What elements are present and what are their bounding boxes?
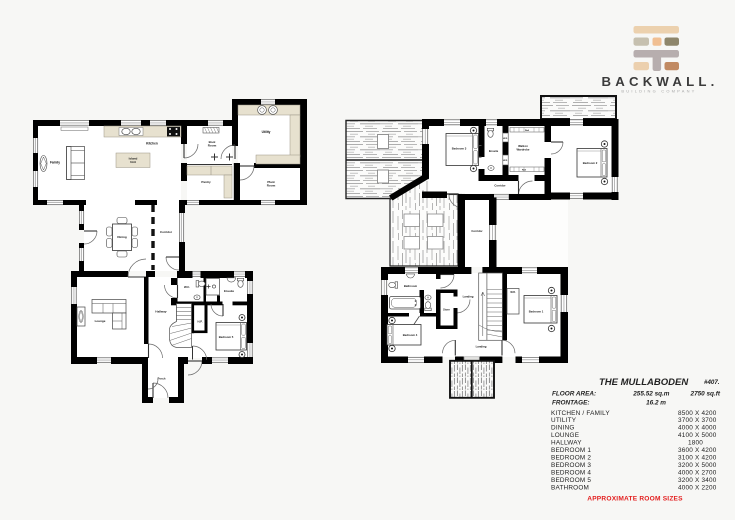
svg-text:Corridor: Corridor (160, 230, 173, 234)
svg-text:HALLWAY: HALLWAY (551, 440, 582, 447)
svg-text:BEDROOM 5: BEDROOM 5 (551, 477, 591, 484)
svg-text:Dining: Dining (117, 235, 126, 239)
svg-text:Bedroom 3: Bedroom 3 (452, 147, 467, 151)
svg-text:Bedroom 4: Bedroom 4 (403, 333, 418, 337)
svg-text:W.R.: W.R. (510, 291, 516, 294)
svg-text:Ensuite: Ensuite (489, 149, 499, 153)
svg-text:Bedroom 2: Bedroom 2 (583, 161, 598, 165)
svg-text:1800: 1800 (688, 440, 703, 447)
svg-text:4000 X 4000: 4000 X 4000 (678, 425, 717, 432)
svg-text:Store: Store (443, 308, 450, 312)
svg-text:Lounge: Lounge (95, 319, 106, 323)
svg-text:4000 X 2200: 4000 X 2200 (678, 484, 717, 491)
svg-text:3200 X 5000: 3200 X 5000 (678, 462, 717, 469)
svg-text:BEDROOM 1: BEDROOM 1 (551, 447, 591, 454)
svg-text:255.52 sq.m: 255.52 sq.m (632, 390, 670, 397)
svg-text:Rail: Rail (525, 130, 529, 132)
svg-text:Family: Family (50, 161, 60, 165)
svg-text:Corridor: Corridor (494, 184, 506, 188)
svg-text:BUILDING COMPANY: BUILDING COMPANY (621, 89, 696, 94)
svg-text:2750 sq.ft: 2750 sq.ft (690, 390, 721, 397)
svg-text:THE MULLABODEN: THE MULLABODEN (599, 377, 689, 388)
svg-text:BATHROOM: BATHROOM (551, 484, 589, 491)
svg-text:APPROXIMATE ROOM SIZES: APPROXIMATE ROOM SIZES (587, 496, 683, 503)
svg-text:Walk-inWardrobe: Walk-inWardrobe (517, 144, 530, 151)
svg-text:W.C.: W.C. (184, 285, 190, 289)
svg-text:Bathroom: Bathroom (404, 284, 418, 288)
svg-text:Bedroom 1: Bedroom 1 (529, 310, 544, 314)
svg-text:Bedroom 5: Bedroom 5 (219, 335, 234, 339)
svg-text:3700 X 3700: 3700 X 3700 (678, 417, 717, 424)
svg-text:BEDROOM 4: BEDROOM 4 (551, 469, 591, 476)
svg-text:3100 X 4200: 3100 X 4200 (678, 455, 717, 462)
svg-text:LOUNGE: LOUNGE (551, 432, 579, 439)
svg-text:FRONTAGE:: FRONTAGE: (552, 399, 590, 406)
svg-text:BEDROOM 2: BEDROOM 2 (551, 455, 591, 462)
svg-text:4100 X 5000: 4100 X 5000 (678, 432, 717, 439)
svg-text:Kitchen: Kitchen (146, 142, 158, 146)
svg-text:Corridor: Corridor (471, 229, 483, 233)
svg-text:16.2 m: 16.2 m (646, 399, 666, 406)
svg-text:Porch: Porch (158, 377, 166, 381)
svg-text:Rail: Rail (522, 170, 526, 172)
svg-text:BEDROOM 3: BEDROOM 3 (551, 462, 591, 469)
svg-text:Landing: Landing (463, 295, 474, 299)
svg-text:8500 X 4200: 8500 X 4200 (678, 410, 717, 417)
svg-text:Ensuite: Ensuite (224, 289, 235, 293)
svg-text:FLOOR AREA:: FLOOR AREA: (552, 390, 596, 397)
svg-text:Hallway: Hallway (155, 310, 167, 314)
svg-text:BACKWALL.: BACKWALL. (602, 74, 719, 89)
svg-text:4000 X 2700: 4000 X 2700 (678, 469, 717, 476)
svg-text:H.P.: H.P. (197, 320, 202, 324)
svg-text:3600 X 4200: 3600 X 4200 (678, 447, 717, 454)
svg-text:W.R.: W.R. (503, 138, 508, 140)
svg-text:BootRoom: BootRoom (208, 140, 217, 148)
svg-text:Pantry: Pantry (201, 180, 211, 184)
svg-text:#407.: #407. (704, 379, 720, 386)
svg-text:KITCHEN / FAMILY: KITCHEN / FAMILY (551, 410, 610, 417)
svg-text:W.R.: W.R. (503, 160, 508, 162)
svg-text:DINING: DINING (551, 425, 575, 432)
svg-text:Utility: Utility (262, 130, 271, 134)
svg-text:3200 X 3400: 3200 X 3400 (678, 477, 717, 484)
svg-text:Landing: Landing (476, 345, 487, 349)
svg-text:UTILITY: UTILITY (551, 417, 577, 424)
svg-text:PlantRoom: PlantRoom (267, 180, 276, 188)
svg-text:W.B.: W.B. (421, 314, 427, 317)
